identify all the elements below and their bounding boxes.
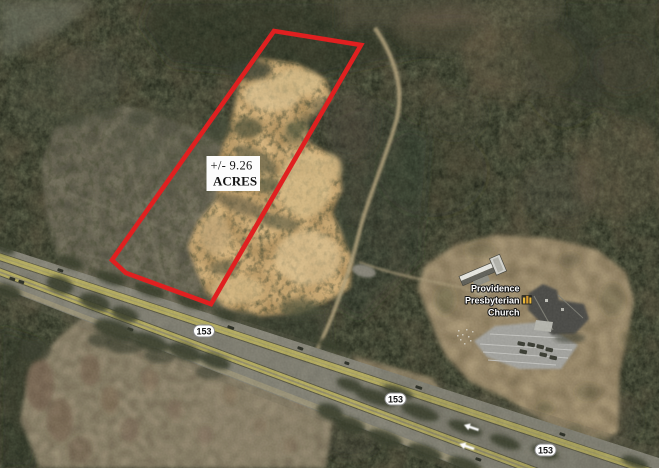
svg-text:Presbyterian: Presbyterian xyxy=(465,296,520,306)
svg-text:+/- 9.26: +/- 9.26 xyxy=(211,159,253,173)
svg-text:153: 153 xyxy=(538,445,553,455)
svg-text:153: 153 xyxy=(196,326,211,336)
svg-text:153: 153 xyxy=(388,394,403,404)
svg-text:Providence: Providence xyxy=(471,284,520,294)
svg-text:Church: Church xyxy=(488,308,520,318)
svg-text:ACRES: ACRES xyxy=(213,174,257,189)
